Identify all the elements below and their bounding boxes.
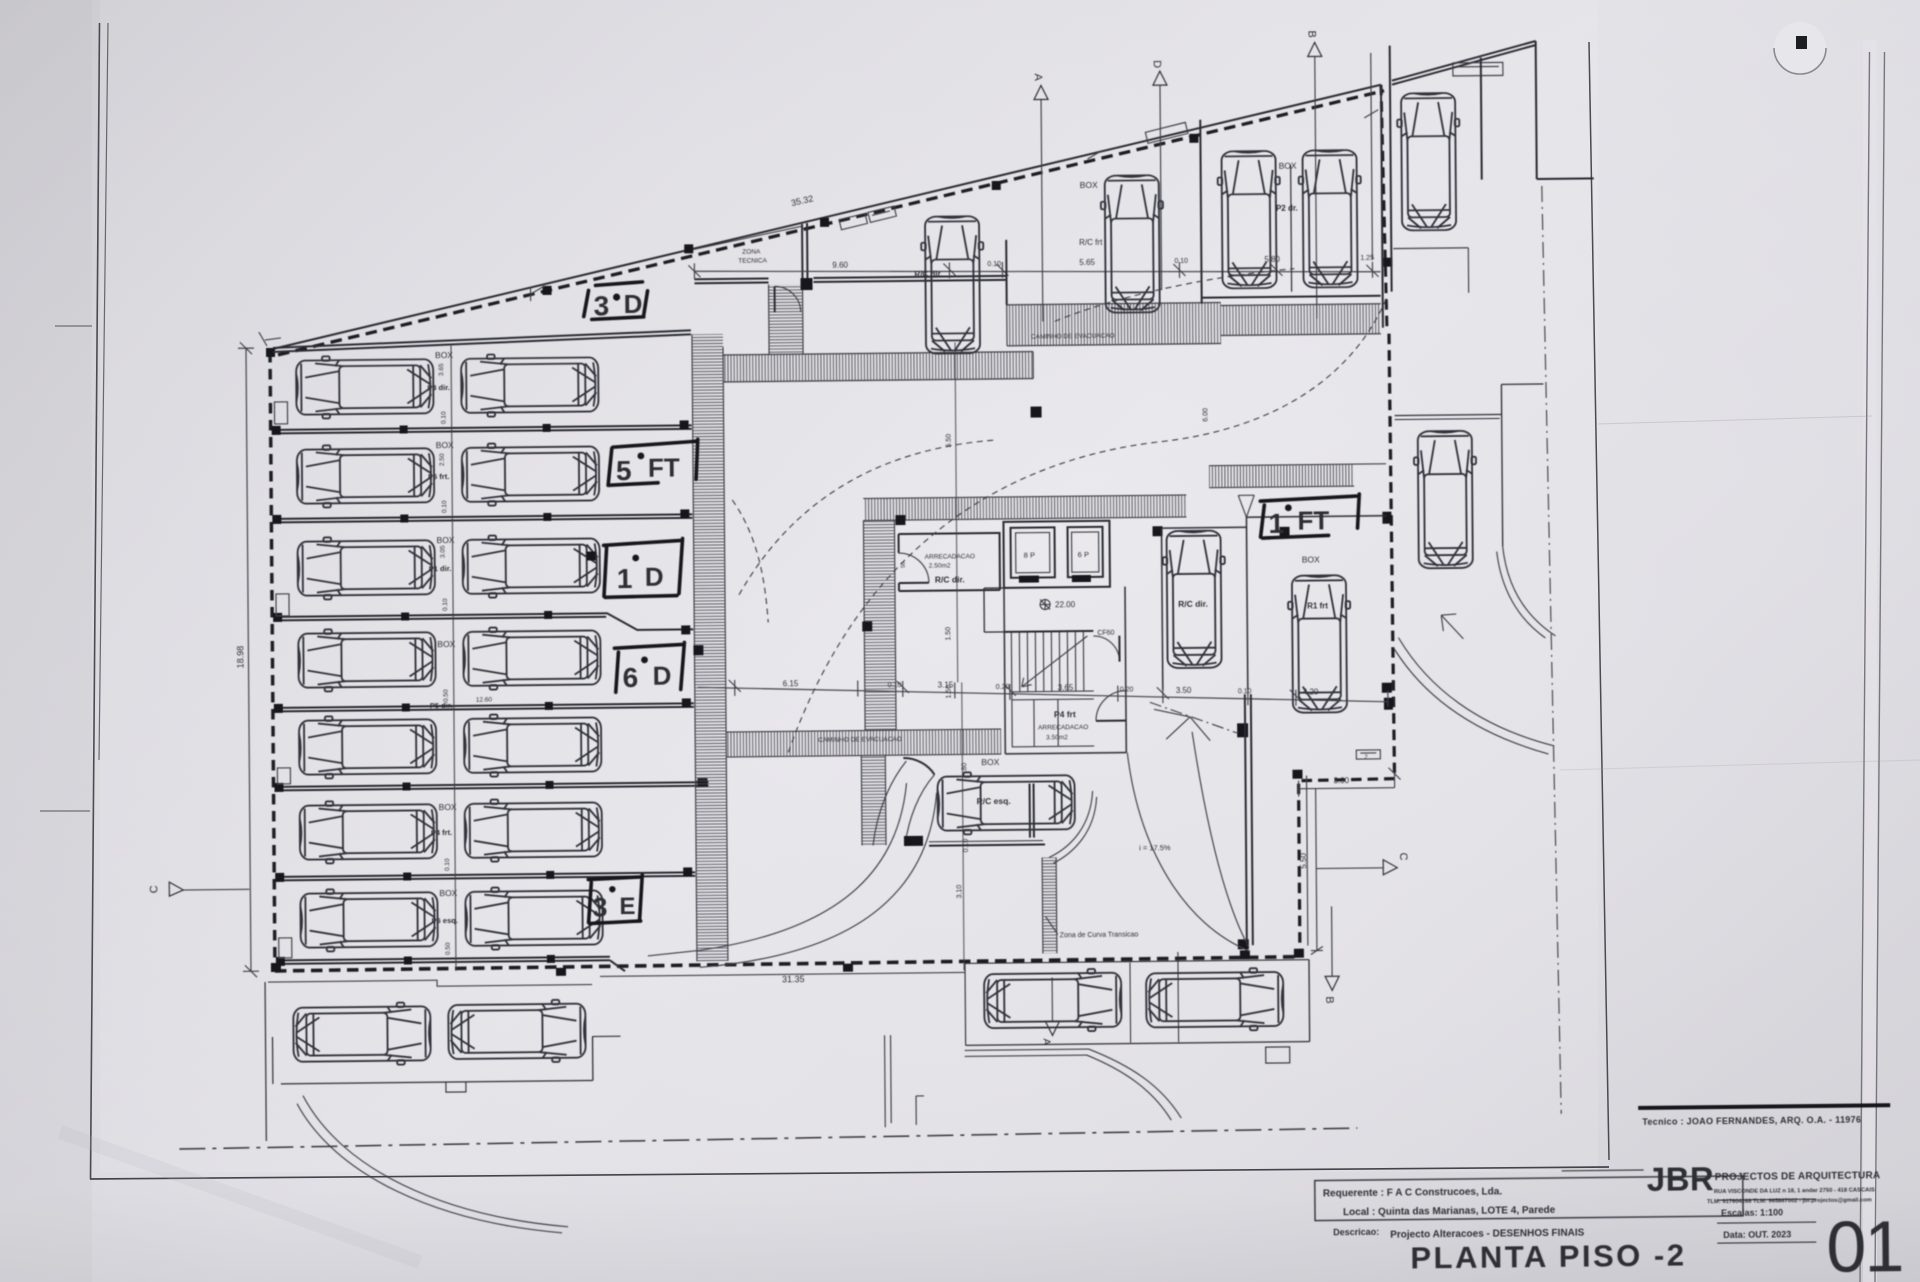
svg-text:CAMINHO DE EVACUACAO: CAMINHO DE EVACUACAO [1031,333,1115,341]
svg-text:BOX: BOX [439,888,457,898]
svg-text:0.10: 0.10 [444,858,451,871]
svg-text:3.00: 3.00 [1334,776,1350,785]
svg-text:D: D [1151,60,1163,68]
svg-text:R/C esq.: R/C esq. [977,796,1011,806]
svg-text:Local : Quinta das Marianas, L: Local : Quinta das Marianas, LOTE 4, Par… [1343,1205,1556,1218]
svg-text:6.00: 6.00 [1203,408,1210,422]
svg-text:TECNICA: TECNICA [738,257,767,264]
svg-text:BOX: BOX [436,440,454,450]
svg-text:Requerente : F A C Construcoe: Requerente : F A C Construcoes, Lda. [1323,1186,1503,1199]
svg-text:P5 frt.: P5 frt. [428,472,449,481]
svg-text:31.35: 31.35 [782,974,805,984]
svg-text:P3 dir.: P3 dir. [427,383,450,392]
svg-text:FT: FT [1297,505,1329,535]
svg-text:0.10: 0.10 [987,261,1001,268]
svg-text:CAMINHO DE EVACUACAO: CAMINHO DE EVACUACAO [818,736,902,744]
svg-text:0.20: 0.20 [1120,687,1134,694]
svg-text:6.15: 6.15 [783,679,799,688]
svg-text:ZONA: ZONA [742,249,761,256]
svg-text:P1 dir.: P1 dir. [429,564,452,573]
svg-text:P4 frt: P4 frt [1054,709,1076,719]
svg-text:P4 frt.: P4 frt. [431,828,452,837]
svg-text:BOX: BOX [1302,554,1320,564]
svg-text:D: D [645,562,664,592]
svg-text:1: 1 [617,563,633,594]
svg-text:0.10: 0.10 [888,682,902,689]
svg-text:ARRECADACAO: ARRECADACAO [925,553,975,561]
svg-text:3.65: 3.65 [1058,683,1074,692]
svg-text:CF60: CF60 [1097,630,1114,637]
svg-text:0.50: 0.50 [445,942,452,955]
svg-text:3.10: 3.10 [956,885,963,899]
svg-text:BOX: BOX [1279,161,1297,171]
svg-text:BOX: BOX [435,350,453,360]
svg-text:BOX: BOX [439,802,457,812]
svg-text:R/C dir.: R/C dir. [914,270,942,279]
svg-text:Escalas: 1:100: Escalas: 1:100 [1721,1207,1783,1218]
svg-text:R/C frt: R/C frt [1079,238,1103,247]
svg-text:01: 01 [1826,1207,1903,1282]
svg-text:0.10: 0.10 [442,598,449,611]
svg-text:C: C [148,885,160,893]
svg-text:5.65: 5.65 [1079,258,1095,267]
svg-text:BOX: BOX [436,535,454,545]
svg-text:PLANTA PISO -2: PLANTA PISO -2 [1410,1237,1686,1275]
svg-text:0.10: 0.10 [441,411,448,424]
svg-text:B: B [1323,996,1335,1003]
svg-text:0.10: 0.10 [1174,258,1188,265]
svg-text:Zona de Curva Transicao: Zona de Curva Transicao [1060,931,1139,939]
svg-text:6: 6 [623,662,639,693]
svg-text:2.50: 2.50 [439,453,446,466]
svg-text:P6 esq.: P6 esq. [432,916,458,925]
svg-text:i = 17.5%: i = 17.5% [1139,843,1171,852]
svg-text:ARRECADACAO: ARRECADACAO [1038,724,1088,732]
svg-text:3.05: 3.05 [440,545,447,558]
svg-text:8 P: 8 P [1024,551,1035,560]
svg-text:2.50m2: 2.50m2 [929,563,951,570]
svg-text:9.60: 9.60 [832,261,848,270]
svg-text:5: 5 [616,455,632,486]
svg-text:PROJECTOS DE ARQUITECTURA: PROJECTOS DE ARQUITECTURA [1715,1170,1881,1183]
svg-text:0.20: 0.20 [996,684,1010,691]
svg-text:22.00: 22.00 [1055,600,1076,609]
svg-text:D: D [653,661,672,691]
svg-text:4.20: 4.20 [1303,687,1319,696]
svg-text:18.98: 18.98 [235,646,245,669]
svg-text:3: 3 [592,892,607,922]
svg-text:JBR: JBR [1647,1160,1715,1198]
svg-text:1.25: 1.25 [1360,255,1374,262]
svg-text:3.65: 3.65 [438,363,445,376]
svg-text:R1 frt: R1 frt [1307,601,1328,610]
svg-text:E: E [619,893,635,920]
svg-text:1.50: 1.50 [946,685,953,699]
svg-text:3: 3 [594,290,610,321]
svg-text:B: B [1306,30,1318,37]
svg-text:C: C [1397,852,1409,860]
svg-text:BOX: BOX [981,757,999,767]
svg-text:R/C dir.: R/C dir. [1178,599,1208,609]
svg-text:Data: OUT. 2023: Data: OUT. 2023 [1723,1229,1791,1240]
svg-text:BOX: BOX [437,639,455,649]
svg-text:A: A [1032,73,1044,81]
svg-text:1: 1 [1268,508,1284,539]
svg-text:R/C dir.: R/C dir. [935,574,965,584]
svg-text:6 P: 6 P [1078,550,1089,559]
svg-text:12.60: 12.60 [476,697,493,704]
svg-text:5.50: 5.50 [1299,852,1308,868]
svg-text:D: D [624,289,643,319]
svg-text:Descricao:: Descricao: [1333,1227,1379,1238]
svg-text:3.50: 3.50 [1176,686,1192,695]
svg-text:1.50: 1.50 [945,627,952,641]
svg-text:FT: FT [648,452,680,482]
svg-text:0.10: 0.10 [441,500,448,513]
svg-text:BOX: BOX [1080,180,1098,190]
svg-text:3.50m2: 3.50m2 [1046,734,1068,741]
svg-text:0.50: 0.50 [443,689,450,702]
svg-text:P2 dr.: P2 dr. [1276,204,1298,213]
